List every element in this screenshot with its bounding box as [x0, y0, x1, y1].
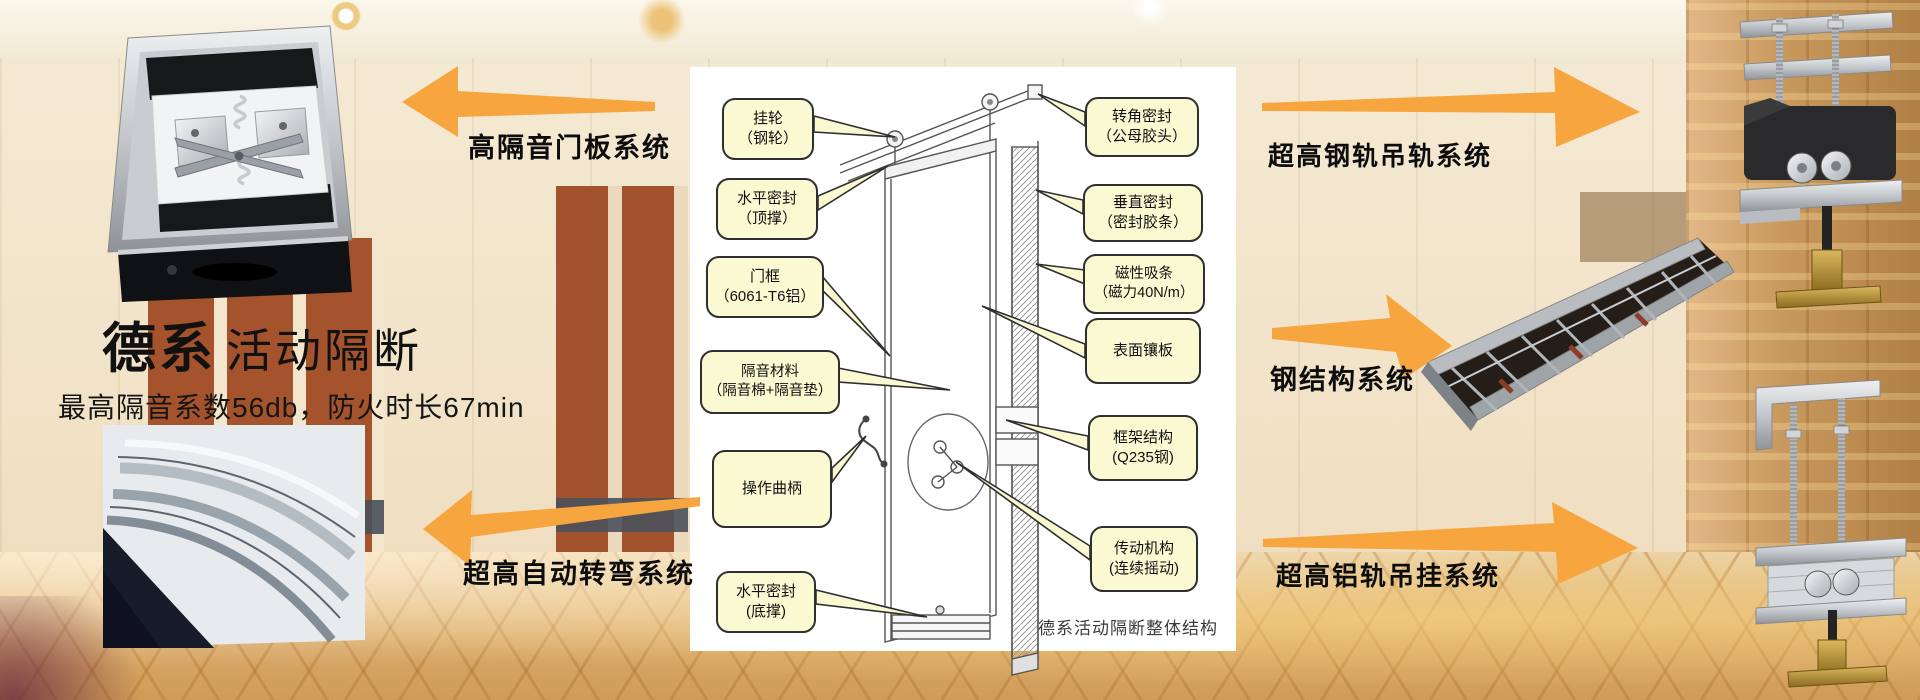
- callout-top-seal: 水平密封 （顶撑）: [716, 178, 818, 240]
- callout-door-frame: 门框 （6061-T6铝）: [706, 256, 824, 318]
- callout-leaders: [0, 0, 1920, 700]
- callout-corner-seal: 转角密封 （公母胶头）: [1085, 97, 1199, 157]
- diagram-caption: 德系活动隔断整体结构: [1038, 614, 1218, 639]
- callout-drive-mechanism: 传动机构 (连续摇动): [1090, 526, 1198, 592]
- callout-bottom-seal: 水平密封 (底撑): [716, 571, 816, 633]
- callout-surface-panel: 表面镶板: [1085, 318, 1201, 384]
- callout-magnetic-strip: 磁性吸条 （磁力40N/m）: [1083, 254, 1205, 314]
- callout-sound-material: 隔音材料 （隔音棉+隔音垫）: [700, 350, 840, 414]
- callout-hanger-wheel: 挂轮 （钢轮）: [722, 98, 814, 160]
- callout-crank: 操作曲柄: [712, 450, 832, 528]
- callout-frame-structure: 框架结构 (Q235钢): [1088, 415, 1198, 481]
- page: 高隔音门板系统 超高自动转弯系统 超高钢轨吊轨系统 钢结构系统 超高铝轨吊挂系统…: [0, 0, 1920, 700]
- callout-vertical-seal: 垂直密封 （密封胶条）: [1083, 184, 1203, 242]
